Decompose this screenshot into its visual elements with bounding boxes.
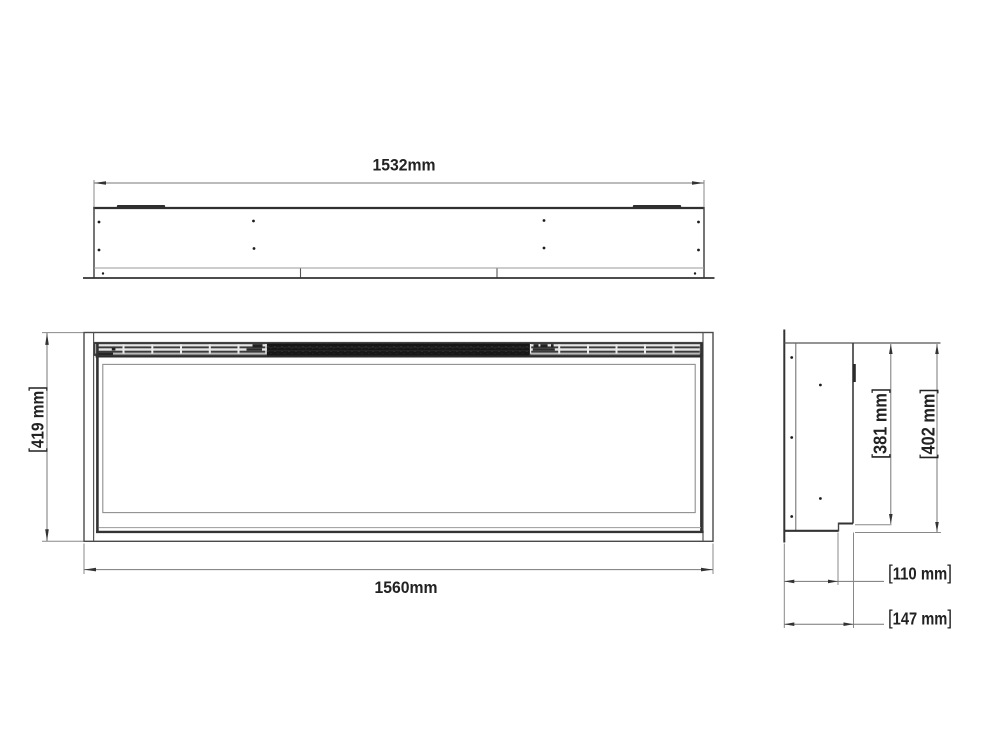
svg-text:[381 mm]: [381 mm]: [869, 388, 891, 459]
svg-text:1560mm: 1560mm: [375, 578, 438, 597]
svg-text:1532mm: 1532mm: [373, 156, 436, 175]
svg-text:[419 mm]: [419 mm]: [27, 386, 49, 453]
svg-text:[110 mm]: [110 mm]: [888, 563, 952, 585]
svg-text:[402 mm]: [402 mm]: [917, 389, 939, 460]
svg-text:[147 mm]: [147 mm]: [888, 607, 952, 629]
